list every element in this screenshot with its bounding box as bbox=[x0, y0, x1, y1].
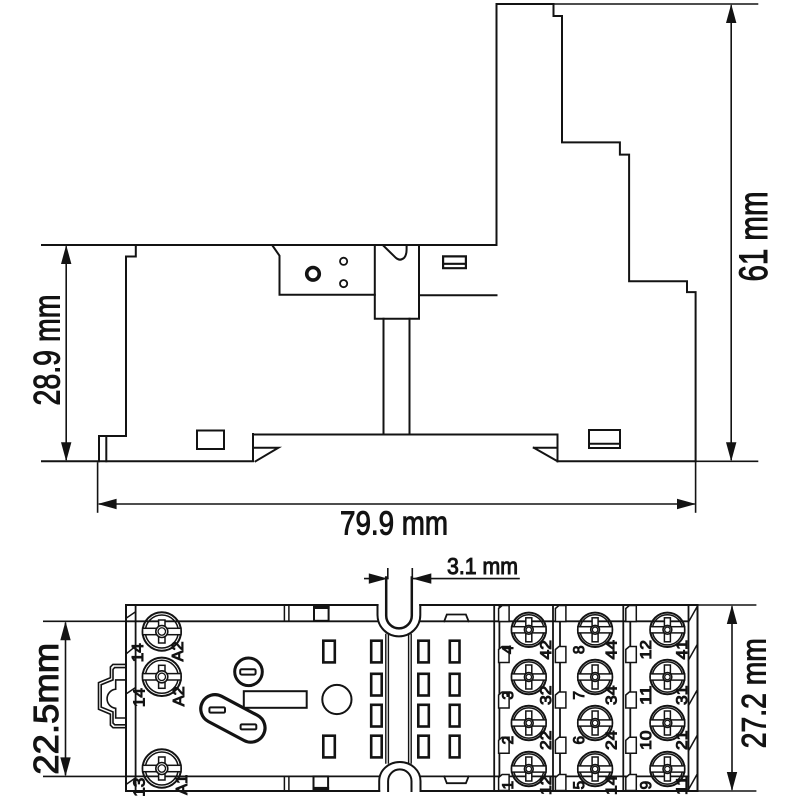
svg-text:79.9 mm: 79.9 mm bbox=[340, 506, 448, 543]
svg-text:32: 32 bbox=[538, 686, 555, 706]
svg-text:1: 1 bbox=[500, 781, 517, 790]
svg-text:3.1 mm: 3.1 mm bbox=[447, 553, 518, 579]
svg-text:8: 8 bbox=[571, 645, 588, 654]
svg-text:A2: A2 bbox=[170, 641, 187, 661]
svg-text:42: 42 bbox=[538, 640, 555, 660]
svg-text:14: 14 bbox=[132, 688, 149, 707]
svg-text:A2: A2 bbox=[171, 686, 188, 706]
svg-text:12: 12 bbox=[638, 640, 655, 660]
svg-text:34: 34 bbox=[603, 685, 620, 705]
svg-text:14: 14 bbox=[603, 775, 620, 795]
svg-text:24: 24 bbox=[603, 730, 620, 750]
svg-text:22: 22 bbox=[538, 730, 555, 750]
svg-text:A1: A1 bbox=[174, 775, 191, 795]
svg-text:44: 44 bbox=[603, 640, 620, 660]
svg-text:2: 2 bbox=[500, 736, 517, 745]
svg-text:31: 31 bbox=[674, 686, 691, 706]
svg-text:27.2 mm: 27.2 mm bbox=[736, 638, 774, 748]
svg-text:4: 4 bbox=[500, 645, 517, 654]
svg-text:7: 7 bbox=[571, 691, 588, 700]
svg-text:9: 9 bbox=[638, 781, 655, 790]
svg-text:61 mm: 61 mm bbox=[732, 192, 776, 282]
svg-text:41: 41 bbox=[674, 640, 691, 660]
svg-text:13: 13 bbox=[132, 778, 149, 797]
svg-text:21: 21 bbox=[674, 730, 691, 750]
svg-text:3: 3 bbox=[500, 691, 517, 700]
svg-text:10: 10 bbox=[638, 730, 655, 750]
svg-text:12: 12 bbox=[538, 775, 555, 795]
svg-text:6: 6 bbox=[571, 736, 588, 745]
svg-text:5: 5 bbox=[571, 781, 588, 790]
svg-text:14: 14 bbox=[130, 643, 147, 662]
svg-text:11: 11 bbox=[674, 775, 691, 795]
svg-text:28.9 mm: 28.9 mm bbox=[27, 295, 68, 406]
svg-text:22.5mm: 22.5mm bbox=[27, 643, 66, 775]
svg-text:11: 11 bbox=[638, 686, 655, 706]
